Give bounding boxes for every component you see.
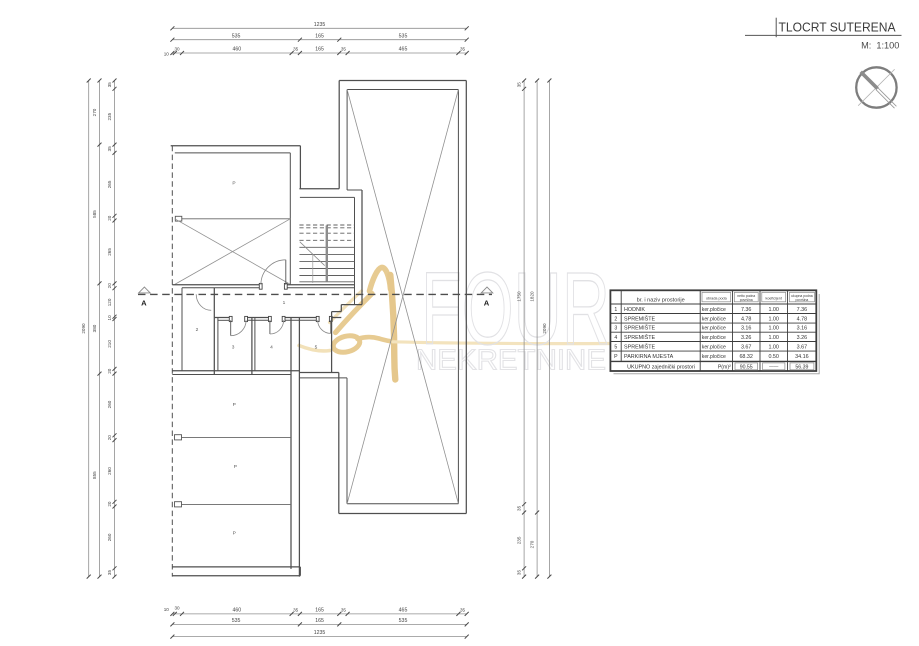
svg-text:ker.pločice: ker.pločice: [702, 344, 726, 350]
svg-text:35: 35: [107, 146, 112, 152]
svg-text:260: 260: [107, 467, 112, 475]
svg-text:35: 35: [517, 82, 522, 88]
svg-text:10: 10: [164, 52, 170, 57]
svg-text:ker.pločice: ker.pločice: [702, 326, 726, 332]
svg-text:35: 35: [293, 47, 299, 52]
svg-text:koeficijent: koeficijent: [765, 296, 781, 300]
svg-text:3: 3: [232, 344, 235, 350]
svg-text:4: 4: [614, 335, 617, 341]
svg-text:SPREMIŠTE: SPREMIŠTE: [624, 325, 656, 332]
svg-text:20: 20: [107, 501, 112, 507]
svg-text:20: 20: [107, 215, 112, 221]
svg-text:35: 35: [460, 47, 466, 52]
svg-text:SPREMIŠTE: SPREMIŠTE: [624, 315, 656, 322]
svg-text:4.78: 4.78: [741, 316, 752, 322]
svg-text:855: 855: [92, 471, 97, 479]
svg-text:120: 120: [107, 298, 112, 306]
svg-text:2: 2: [614, 316, 617, 322]
svg-text:270: 270: [530, 540, 535, 548]
svg-text:ker.pločice: ker.pločice: [702, 354, 726, 360]
svg-text:35: 35: [341, 47, 347, 52]
svg-text:5: 5: [614, 344, 617, 350]
svg-text:UKUPNO zajednički prostori: UKUPNO zajednički prostori: [627, 365, 695, 371]
svg-text:30: 30: [174, 605, 180, 610]
svg-text:obrada poda: obrada poda: [706, 296, 728, 300]
svg-text:1.00: 1.00: [768, 307, 779, 313]
svg-text:A: A: [141, 299, 147, 308]
svg-text:380: 380: [92, 324, 97, 332]
svg-text:PARKIRNA MJESTA: PARKIRNA MJESTA: [624, 354, 674, 360]
svg-text:235: 235: [107, 112, 112, 120]
svg-text:P: P: [232, 180, 235, 186]
svg-text:2090: 2090: [81, 323, 86, 334]
svg-text:535: 535: [399, 33, 408, 39]
svg-text:1.00: 1.00: [768, 326, 779, 332]
svg-text:SPREMIŠTE: SPREMIŠTE: [624, 343, 656, 350]
svg-text:A: A: [484, 299, 490, 308]
svg-text:165: 165: [315, 618, 324, 624]
svg-text:585: 585: [92, 210, 97, 218]
svg-text:35: 35: [107, 570, 112, 576]
svg-text:535: 535: [399, 618, 408, 624]
svg-text:165: 165: [315, 607, 324, 613]
svg-text:3: 3: [614, 326, 617, 332]
svg-text:1.00: 1.00: [768, 344, 779, 350]
svg-text:P: P: [614, 354, 618, 360]
svg-text:35: 35: [517, 570, 522, 576]
svg-text:465: 465: [399, 47, 408, 53]
svg-text:2090: 2090: [542, 323, 547, 334]
svg-text:P: P: [234, 464, 237, 470]
svg-text:535: 535: [232, 33, 241, 39]
svg-text:165: 165: [315, 33, 324, 39]
svg-text:3.26: 3.26: [741, 335, 752, 341]
svg-text:265: 265: [107, 180, 112, 188]
svg-text:HODNIK: HODNIK: [624, 307, 645, 313]
svg-text:465: 465: [399, 607, 408, 613]
svg-text:P(m)²: P(m)²: [718, 365, 731, 371]
svg-text:20: 20: [107, 368, 112, 374]
svg-text:P: P: [233, 402, 236, 408]
svg-text:1820: 1820: [530, 291, 535, 302]
svg-text:ker.pločice: ker.pločice: [702, 316, 726, 322]
svg-text:——: ——: [769, 364, 779, 369]
svg-text:260: 260: [107, 533, 112, 541]
svg-text:460: 460: [232, 47, 241, 53]
svg-text:ker.pločice: ker.pločice: [702, 335, 726, 341]
svg-text:1.00: 1.00: [768, 316, 779, 322]
svg-text:460: 460: [232, 607, 241, 613]
svg-text:2: 2: [196, 327, 199, 333]
svg-text:1: 1: [283, 300, 286, 306]
svg-text:10: 10: [107, 315, 112, 321]
svg-text:265: 265: [107, 248, 112, 256]
svg-text:3.16: 3.16: [741, 326, 752, 332]
svg-text:1235: 1235: [314, 630, 326, 636]
svg-text:4.78: 4.78: [797, 316, 808, 322]
svg-text:7.36: 7.36: [741, 307, 752, 313]
svg-text:1.00: 1.00: [768, 335, 779, 341]
svg-text:3.67: 3.67: [741, 344, 752, 350]
svg-text:NEKRETNINE: NEKRETNINE: [416, 345, 606, 377]
svg-text:ker.pločice: ker.pločice: [702, 307, 726, 313]
svg-text:35: 35: [293, 607, 299, 612]
svg-text:3.26: 3.26: [797, 335, 808, 341]
svg-text:35: 35: [460, 607, 466, 612]
svg-text:P: P: [233, 530, 236, 536]
svg-text:34.16: 34.16: [795, 354, 809, 360]
svg-text:4: 4: [270, 344, 273, 350]
svg-text:površina: površina: [740, 298, 753, 302]
svg-text:TLOCRT SUTERENA: TLOCRT SUTERENA: [779, 20, 896, 35]
svg-text:35: 35: [517, 505, 522, 511]
svg-text:5: 5: [315, 344, 318, 350]
svg-text:35: 35: [341, 607, 347, 612]
svg-text:20: 20: [107, 435, 112, 441]
svg-text:0.50: 0.50: [768, 354, 779, 360]
svg-text:7.36: 7.36: [797, 307, 808, 313]
svg-text:35: 35: [107, 82, 112, 88]
svg-text:3.67: 3.67: [797, 344, 808, 350]
svg-text:površina: površina: [795, 298, 808, 302]
svg-text:10: 10: [164, 607, 170, 612]
svg-text:535: 535: [232, 618, 241, 624]
svg-text:30: 30: [174, 47, 180, 52]
svg-text:260: 260: [107, 400, 112, 408]
svg-text:1: 1: [614, 307, 617, 313]
svg-text:270: 270: [92, 108, 97, 116]
svg-text:br. i naziv prostorije: br. i naziv prostorije: [637, 298, 685, 304]
svg-text:M: 1:100: M: 1:100: [861, 40, 899, 50]
svg-text:20: 20: [107, 283, 112, 289]
svg-text:SPREMIŠTE: SPREMIŠTE: [624, 334, 656, 341]
svg-text:165: 165: [315, 47, 324, 53]
svg-text:68.32: 68.32: [739, 354, 753, 360]
svg-text:1235: 1235: [314, 22, 326, 28]
svg-text:1750: 1750: [517, 291, 522, 302]
svg-text:235: 235: [517, 536, 522, 544]
svg-text:210: 210: [107, 340, 112, 348]
svg-text:3.16: 3.16: [797, 326, 808, 332]
